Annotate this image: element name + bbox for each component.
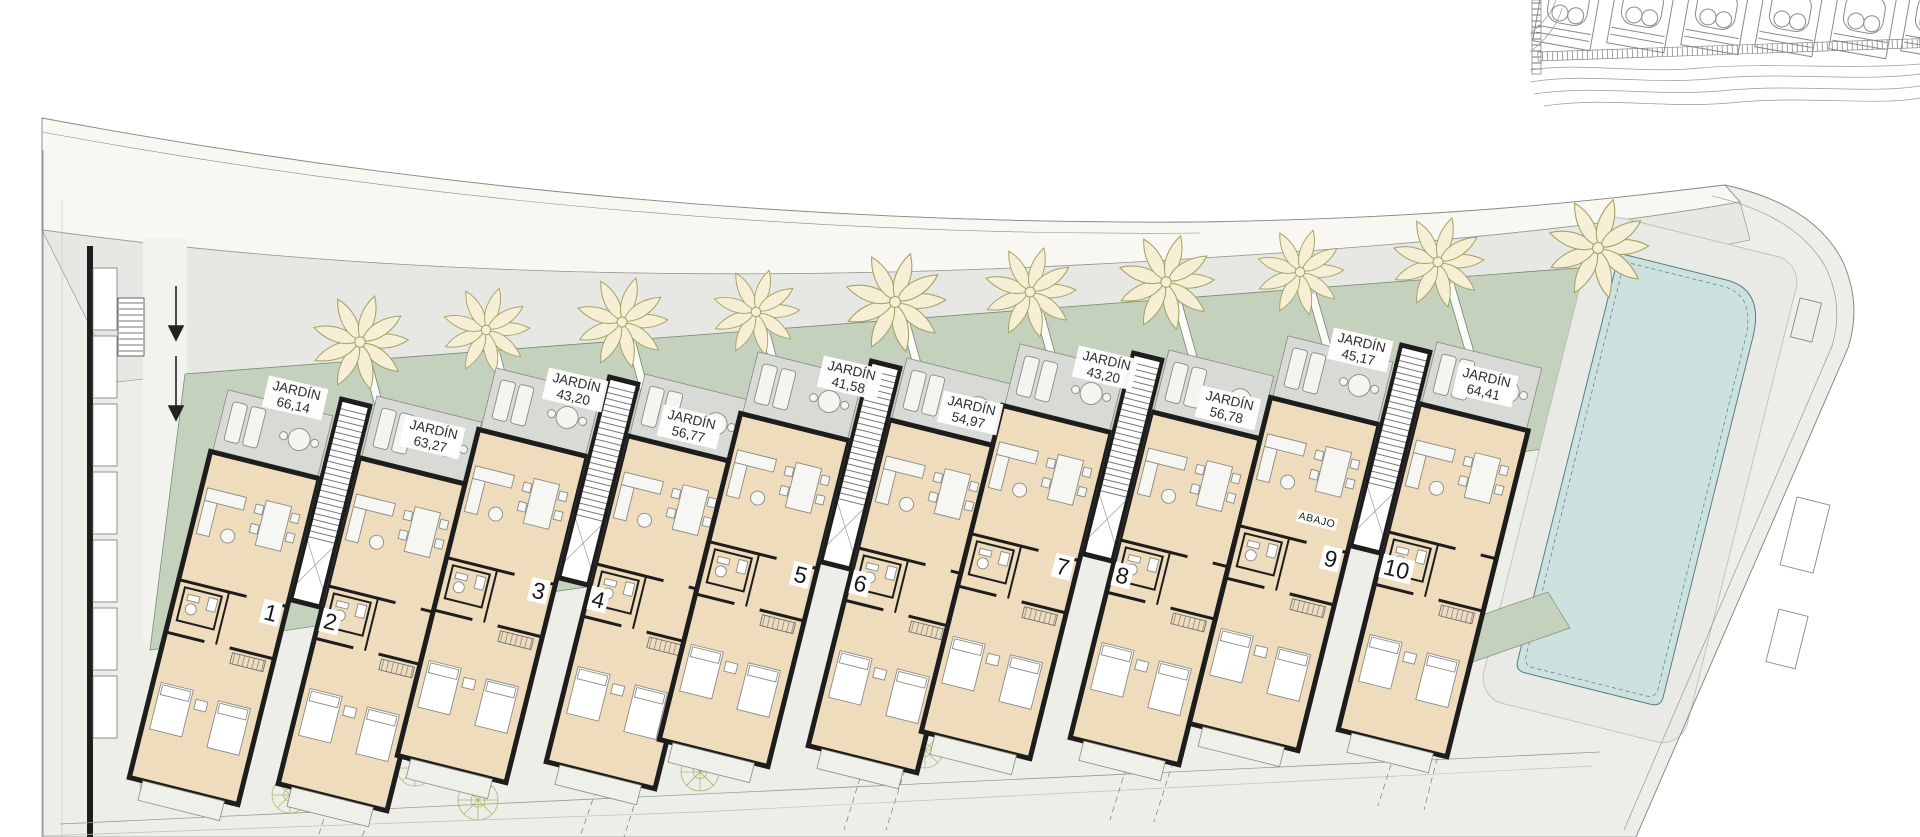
location-minimap [1530, 0, 1920, 106]
site-steps [118, 298, 144, 356]
storage-boxes [93, 268, 117, 738]
site-plan-canvas: const data = JSON.parse(document.getElem… [0, 0, 1920, 837]
